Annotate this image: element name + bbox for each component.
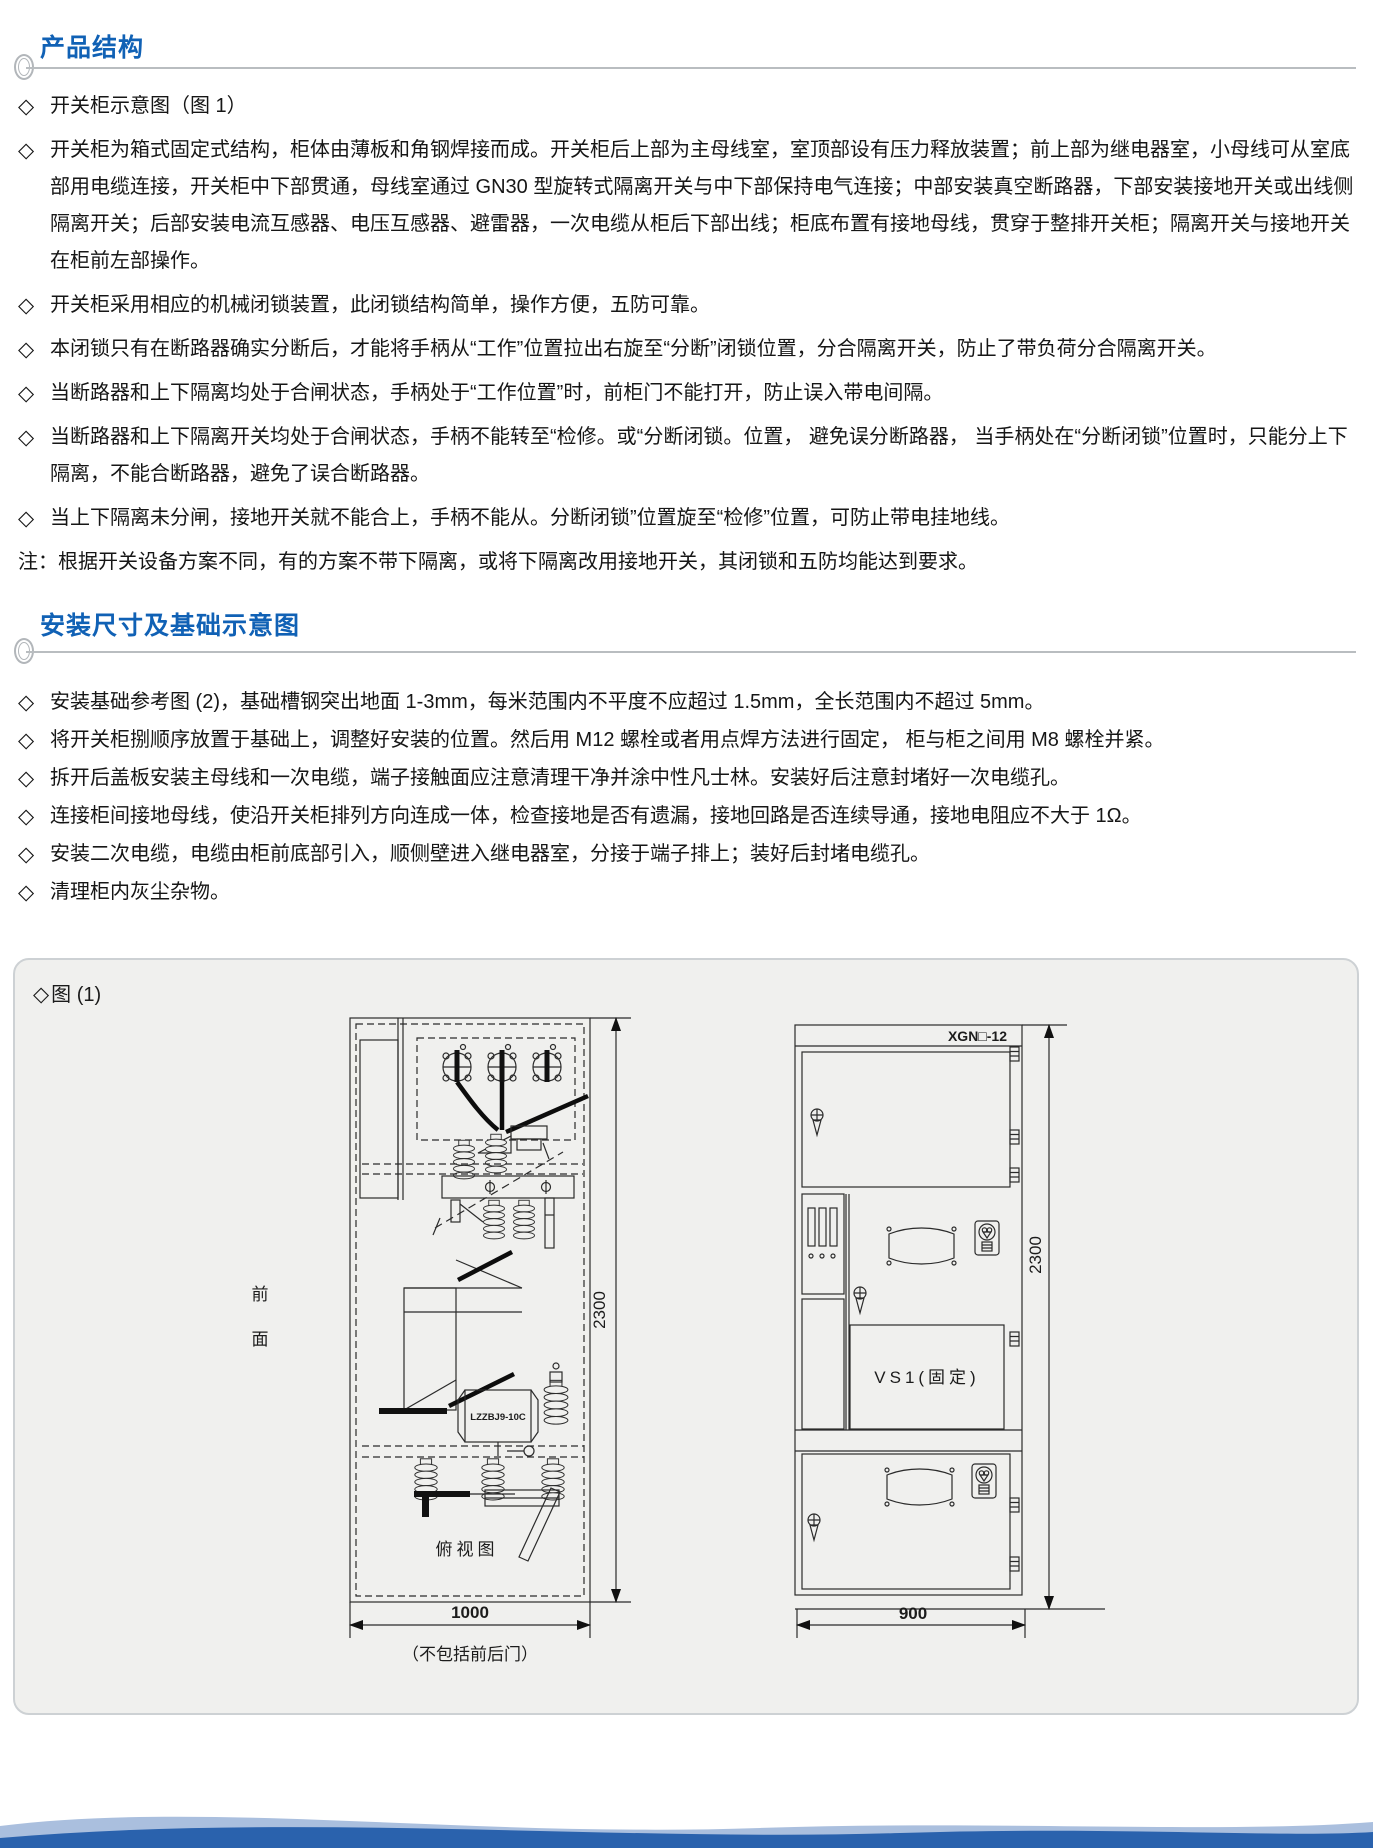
note-line: 注：根据开关设备方案不同，有的方案不带下隔离，或将下隔离改用接地开关，其闭锁和五… (18, 544, 1360, 581)
dimension-height-left: 2300 (590, 1018, 631, 1602)
list-item: ◇本闭锁只有在断路器确实分断后，才能将手柄从“工作”位置拉出右旋至“分断”闭锁位… (18, 331, 1360, 368)
list-item: ◇开关柜为箱式固定式结构，柜体由薄板和角钢焊接而成。开关柜后上部为主母线室，室顶… (18, 132, 1360, 280)
list-item: ◇当断路器和上下隔离开关均处于合闸状态，手柄不能转至“检修。或“分断闭锁。位置，… (18, 419, 1360, 493)
section-divider-line (26, 651, 1356, 653)
section-title-product-structure: 产品结构 (40, 28, 144, 64)
list-item-text: 当断路器和上下隔离均处于合闸状态，手柄处于“工作位置”时，前柜门不能打开，防止误… (50, 382, 943, 404)
installation-list: ◇安装基础参考图 (2)，基础槽钢突出地面 1-3mm，每米范围内不平度不应超过… (18, 684, 1360, 912)
dimension-height-right: 2300 (1022, 1025, 1067, 1609)
list-item-text: 安装二次电缆，电缆由柜前底部引入，顺侧壁进入继电器室，分接于端子排上；装好后封堵… (50, 843, 930, 865)
diamond-bullet-icon: ◇ (18, 836, 34, 873)
section-title-installation: 安装尺寸及基础示意图 (40, 606, 300, 642)
dimension-width-left: 1000 （不包括前后门） (350, 1602, 590, 1664)
footer-wave-decoration (0, 1792, 1373, 1848)
ct-model-label: LZZBJ9-10C (470, 1412, 526, 1423)
list-item-text: 开关柜为箱式固定式结构，柜体由薄板和角钢焊接而成。开关柜后上部为主母线室，室顶部… (50, 139, 1353, 272)
diamond-bullet-icon: ◇ (18, 874, 34, 911)
height-dim-value: 2300 (590, 1291, 609, 1329)
figure-1-panel: ◇图 (1) (13, 958, 1359, 1715)
diamond-bullet-icon: ◇ (18, 798, 34, 835)
diamond-bullet-icon: ◇ (18, 419, 34, 456)
width-dim-value: 900 (899, 1604, 927, 1623)
list-item: ◇开关柜示意图（图 1） (18, 88, 1360, 125)
list-item: ◇拆开后盖板安装主母线和一次电缆，端子接触面应注意清理干净并涂中性凡士林。安装好… (18, 760, 1360, 797)
list-item-text: 当上下隔离未分闸，接地开关就不能合上，手柄不能从。分断闭锁”位置旋至“检修”位置… (50, 507, 1010, 529)
list-item-text: 拆开后盖板安装主母线和一次电缆，端子接触面应注意清理干净并涂中性凡士林。安装好后… (50, 767, 1070, 789)
list-item-text: 清理柜内灰尘杂物。 (50, 881, 230, 903)
document-page: { "colors":{"accent_blue":"#1061b5","fig… (0, 0, 1373, 1848)
list-item: ◇安装二次电缆，电缆由柜前底部引入，顺侧壁进入继电器室，分接于端子排上；装好后封… (18, 836, 1360, 873)
list-item-text: 将开关柜捌顺序放置于基础上，调整好安装的位置。然后用 M12 螺栓或者用点焊方法… (50, 729, 1164, 751)
switchgear-technical-drawing: LZZBJ9-10C 俯视图 (15, 960, 1361, 1717)
front-face-label-1: 前 (252, 1285, 273, 1304)
height-dim-value: 2300 (1026, 1236, 1045, 1274)
vcb-label: VS1(固定) (874, 1368, 979, 1387)
list-item: ◇清理柜内灰尘杂物。 (18, 874, 1360, 911)
list-item-text: 开关柜采用相应的机械闭锁装置，此闭锁结构简单，操作方便，五防可靠。 (50, 294, 710, 316)
width-dim-value: 1000 (451, 1603, 489, 1622)
diamond-bullet-icon: ◇ (18, 500, 34, 537)
diamond-bullet-icon: ◇ (18, 375, 34, 412)
top-view-section: 俯视图 (414, 1459, 564, 1561)
list-item-text: 本闭锁只有在断路器确实分断后，才能将手柄从“工作”位置拉出右旋至“分断”闭锁位置… (50, 338, 1217, 360)
list-item: ◇将开关柜捌顺序放置于基础上，调整好安装的位置。然后用 M12 螺栓或者用点焊方… (18, 722, 1360, 759)
busbar-bushings (443, 1045, 561, 1083)
list-item-text: 当断路器和上下隔离开关均处于合闸状态，手柄不能转至“检修。或“分断闭锁。位置， … (50, 426, 1348, 485)
diamond-bullet-icon: ◇ (18, 287, 34, 324)
list-item-text: 连接柜间接地母线，使沿开关柜排列方向连成一体，检查接地是否有遗漏，接地回路是否连… (50, 805, 1142, 827)
list-item: ◇安装基础参考图 (2)，基础槽钢突出地面 1-3mm，每米范围内不平度不应超过… (18, 684, 1360, 721)
diamond-bullet-icon: ◇ (18, 684, 34, 721)
cabinet-front-view: XGN□-12 (795, 1025, 1105, 1638)
cabinet-model-label: XGN□-12 (948, 1028, 1007, 1044)
diamond-bullet-icon: ◇ (18, 760, 34, 797)
width-dim-note: （不包括前后门） (402, 1645, 538, 1664)
front-face-label-2: 面 (252, 1330, 273, 1349)
list-item: ◇当上下隔离未分闸，接地开关就不能合上，手柄不能从。分断闭锁”位置旋至“检修”位… (18, 500, 1360, 537)
diamond-bullet-icon: ◇ (18, 722, 34, 759)
list-item-text: 开关柜示意图（图 1） (50, 95, 247, 117)
top-view-label: 俯视图 (436, 1540, 499, 1559)
list-item-text: 安装基础参考图 (2)，基础槽钢突出地面 1-3mm，每米范围内不平度不应超过 … (50, 691, 1044, 713)
diamond-bullet-icon: ◇ (18, 331, 34, 368)
list-item: ◇当断路器和上下隔离均处于合闸状态，手柄处于“工作位置”时，前柜门不能打开，防止… (18, 375, 1360, 412)
product-structure-list: ◇开关柜示意图（图 1） ◇开关柜为箱式固定式结构，柜体由薄板和角钢焊接而成。开… (18, 88, 1360, 588)
diamond-bullet-icon: ◇ (18, 132, 34, 169)
section-divider-line (26, 67, 1356, 69)
list-item: ◇开关柜采用相应的机械闭锁装置，此闭锁结构简单，操作方便，五防可靠。 (18, 287, 1360, 324)
diamond-bullet-icon: ◇ (18, 88, 34, 125)
list-item: ◇连接柜间接地母线，使沿开关柜排列方向连成一体，检查接地是否有遗漏，接地回路是否… (18, 798, 1360, 835)
cabinet-section-view: LZZBJ9-10C 俯视图 (252, 1018, 632, 1664)
